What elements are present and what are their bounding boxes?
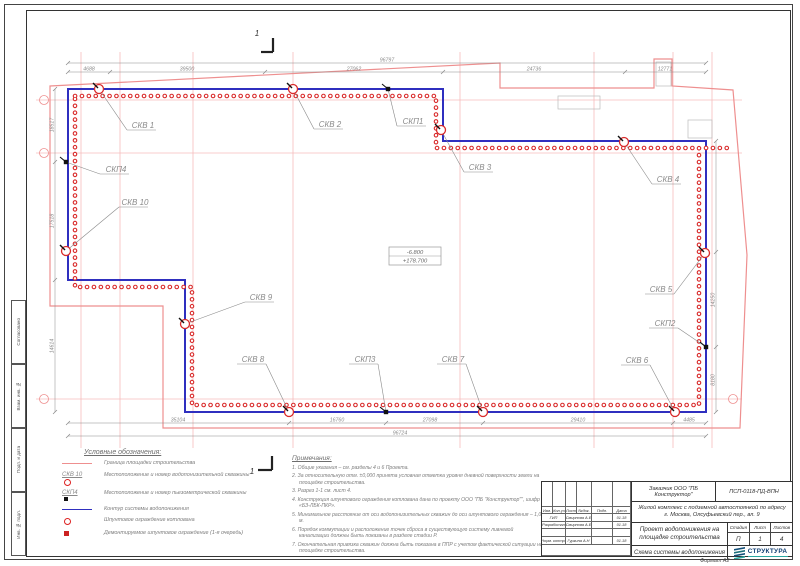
dim-value: 16760 [330, 418, 345, 424]
note-item: 7. Окончательная привязка скважин должна… [292, 542, 544, 555]
notes-title: Примечания: [292, 455, 544, 462]
dim-value: 29410 [570, 418, 586, 424]
project-description: Жилой комплекс с подземной автостоянкой … [632, 502, 792, 523]
note-item: 3. Разрез 1-1 см. лист 4. [292, 488, 544, 495]
legend: Условные обозначения: Граница площадки с… [58, 449, 286, 541]
section-mark-number: 1 [255, 29, 259, 38]
title-block: Изм. Кол.уч Лист №док. Подп. Дата ГИП См… [541, 481, 793, 557]
legend-item-label: Демонтируемое шпунтовое ограждение (1-я … [104, 530, 243, 537]
dim-value: 4485 [683, 418, 695, 424]
piezometer-скп4-tick [60, 157, 66, 162]
dim-value: 8180 [711, 374, 717, 386]
legend-item-dismantled-sheetpile: Демонтируемое шпунтовое ограждение (1-я … [58, 530, 286, 537]
col-header: №док. [577, 507, 592, 514]
side-stamp-label: Согласовано [16, 318, 21, 346]
col-header: Изм. [542, 507, 553, 514]
legend-item-piezometer: СКП4 Местоположение и номер пьезометриче… [58, 490, 286, 501]
well-ring-icon [64, 479, 71, 486]
dim-value: 4688 [83, 67, 95, 73]
note-item: 5. Минимальное расстояние от оси водопон… [292, 512, 544, 525]
dim-value: 14250 [711, 293, 717, 308]
dim-value: 96724 [393, 431, 408, 437]
sheetpile-chain [75, 96, 699, 405]
legend-item-boundary: Граница площадки строительства [58, 460, 286, 467]
drawing-sheet: 9679746883950027062247361277135104167602… [0, 0, 800, 566]
elevation-absolute: +178.700 [403, 259, 428, 265]
col-header: Дата [613, 507, 631, 514]
dim-value: 96797 [380, 58, 396, 64]
dim-value: 18517 [50, 117, 56, 133]
logo-text: СТРУКТУРА [748, 548, 787, 555]
col-header: Подп. [592, 507, 613, 514]
well-скв-7-label: СКВ 7 [442, 355, 465, 364]
dim-value: 27098 [422, 418, 438, 424]
well-скв-9-label: СКВ 9 [250, 293, 273, 302]
structura-logo-icon [733, 546, 746, 559]
legend-item-label: Граница площадки строительства [104, 460, 195, 467]
note-item: 2. За относительную отм. ±0,000 принята … [292, 473, 544, 486]
side-stamp: Подп. и дата [11, 428, 26, 492]
row-date: 01.18 [613, 514, 631, 522]
piezometer-tag: СКП4 [62, 490, 78, 496]
well-скв-10-label: СКВ 10 [122, 198, 150, 207]
side-stamp-label: Взам. инв. № [16, 382, 21, 411]
row-name: Смирнова А.Е [566, 514, 592, 522]
legend-item-label: Шпунтовое ограждение котлована [104, 517, 195, 524]
elevation-relative: -6.800 [407, 250, 424, 256]
row-date: 01.18 [613, 522, 631, 530]
legend-item-sheetpile: Шпунтовое ограждение котлована [58, 517, 286, 525]
note-item: 6. Порядок коммутации и расположение точ… [292, 527, 544, 540]
legend-item-contour: Контур системы водопонижения [58, 506, 286, 513]
dismantled-sheetpile-symbol [58, 530, 104, 536]
stage-value: П [728, 533, 750, 545]
stage-table: Стадия Лист Листов П 1 4 [727, 523, 792, 545]
side-stamp-label: Инв. № подл. [16, 510, 21, 539]
row-name: Смирнова А.Е [566, 522, 592, 530]
dewatering-contour [68, 89, 706, 412]
document-title: Проект водопонижения на площадке строите… [632, 523, 727, 545]
dim-value: 24736 [526, 67, 542, 73]
well-скв-6-label: СКВ 6 [626, 356, 649, 365]
well-скв-4-label: СКВ 4 [657, 175, 680, 184]
row-signature [592, 514, 613, 522]
sheetpile-chain-inner [75, 96, 699, 405]
row-signature [592, 522, 613, 530]
note-item: 4. Конструкция шпунтового ограждения кот… [292, 497, 544, 510]
dim-value: 35104 [171, 418, 186, 424]
well-скв-5-label: СКВ 5 [650, 285, 673, 294]
well-скв-2-label: СКВ 2 [319, 120, 342, 129]
dim-value: 39500 [180, 67, 195, 73]
format-label: Формат А2 [700, 558, 730, 564]
logo-tagline [748, 556, 788, 558]
sheet-label: Лист [750, 523, 772, 532]
dim-value: 12771 [658, 67, 673, 73]
company-logo: СТРУКТУРА [727, 546, 792, 559]
piezometer-square-icon [64, 497, 68, 501]
sheets-label: Листов [771, 523, 792, 532]
title-block-signature-table: Изм. Кол.уч Лист №док. Подп. Дата ГИП См… [542, 482, 632, 556]
note-item: 1. Общие указания – см. разделы 4 и 6 Пр… [292, 465, 544, 472]
side-stamp: Инв. № подл. [11, 492, 26, 556]
well-скв-3-label: СКВ 3 [469, 163, 492, 172]
col-header: Кол.уч [553, 507, 566, 514]
site-boundary-symbol [58, 460, 104, 464]
legend-item-well: СКВ 10 Местоположение и номер водопонизи… [58, 472, 286, 486]
side-stamp: Взам. инв. № [11, 364, 26, 428]
col-header: Лист [566, 507, 577, 514]
legend-item-label: Местоположение и номер водопонизительной… [104, 472, 249, 479]
row-date: 01.18 [613, 537, 631, 545]
piezometer-symbol: СКП4 [58, 490, 104, 501]
piezometer-скп4-label: СКП4 [106, 165, 127, 174]
customer-name: Заказчик ООО "ПБ Конструктор" [632, 482, 715, 501]
stage-label: Стадия [728, 523, 750, 532]
row-role: Разработал [542, 522, 566, 530]
site-boundary [50, 59, 747, 428]
label-leader [66, 162, 100, 174]
dim-value: 27062 [346, 67, 362, 73]
side-stamp-column: Согласовано Взам. инв. № Подп. и дата Ин… [11, 300, 26, 556]
dim-value: 17518 [50, 214, 56, 229]
legend-title: Условные обозначения: [84, 449, 286, 456]
sheets-value: 4 [771, 533, 792, 545]
well-symbol: СКВ 10 [58, 472, 104, 486]
piezometer-скп3-label: СКП3 [355, 355, 376, 364]
side-stamp-label: Подп. и дата [16, 446, 21, 473]
sheetpile-symbol [58, 517, 104, 525]
contour-symbol [58, 506, 104, 510]
row-role: ГИП [542, 514, 566, 522]
existing-structure [688, 120, 712, 138]
row-name: Гуркина А.Н [566, 537, 592, 545]
piezometer-скп1-label: СКП1 [403, 117, 424, 126]
row-role: Норм. контр. [542, 537, 566, 545]
well-скв-8-label: СКВ 8 [242, 355, 265, 364]
label-leader [441, 130, 464, 172]
row-signature [592, 537, 613, 545]
well-tag: СКВ 10 [62, 472, 82, 478]
document-code: ПСП-0118-ПД-ВПН [715, 482, 792, 501]
notes: Примечания: 1. Общие указания – см. разд… [292, 455, 544, 557]
side-stamp: Согласовано [11, 300, 26, 364]
well-скв-1-label: СКВ 1 [132, 121, 155, 130]
sheet-value: 1 [750, 533, 772, 545]
dim-value: 14614 [50, 339, 56, 354]
piezometer-скп2-label: СКП2 [655, 319, 676, 328]
legend-item-label: Местоположение и номер пьезометрической … [104, 490, 246, 497]
legend-item-label: Контур системы водопонижения [104, 506, 189, 513]
